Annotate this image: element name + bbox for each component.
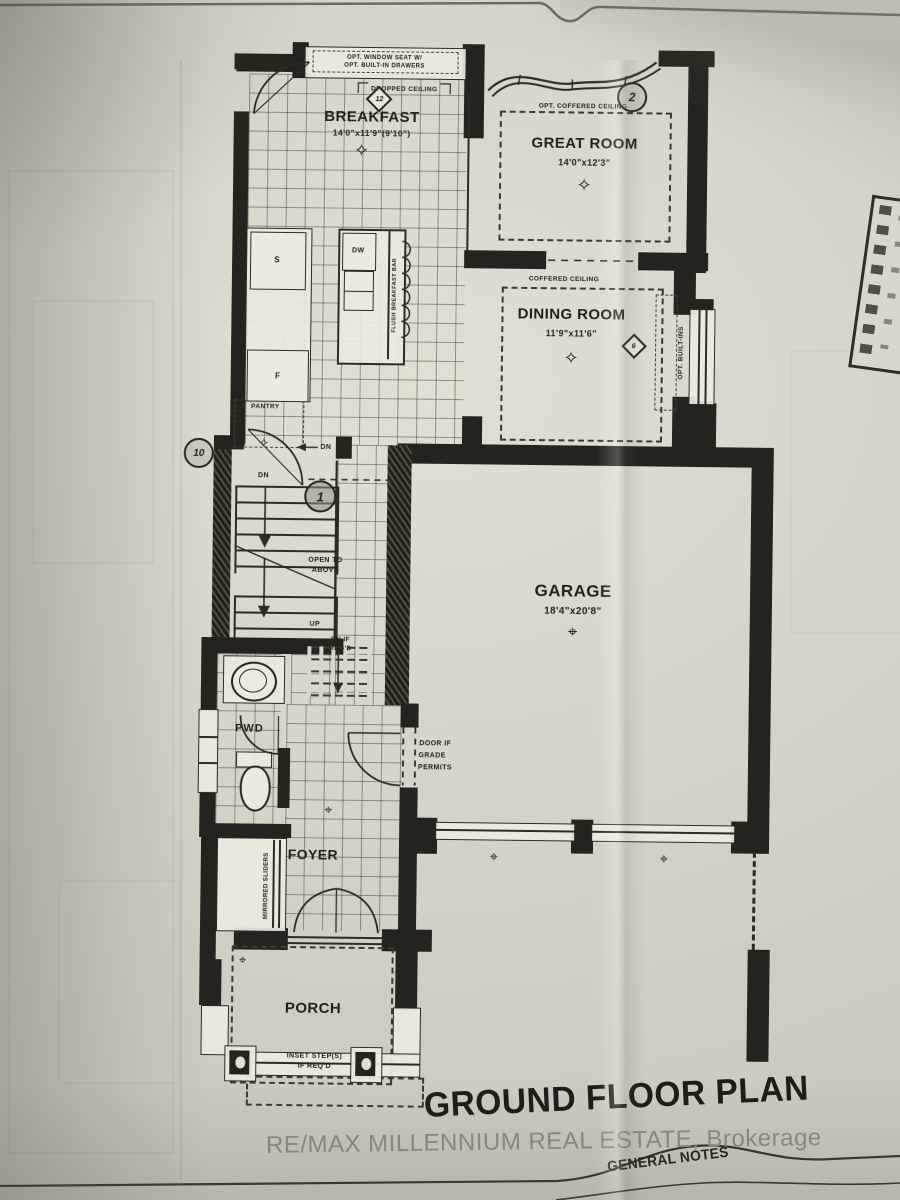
great-room-label: GREAT ROOM bbox=[531, 134, 637, 152]
foyer-tile-floor bbox=[284, 704, 403, 931]
dn-label: DN bbox=[258, 472, 269, 479]
marker-circle-1: 1 bbox=[304, 480, 336, 512]
open-to-above-line1: OPEN TO bbox=[308, 557, 342, 564]
pwd-window bbox=[198, 709, 219, 793]
stair-left-wall bbox=[211, 437, 231, 641]
wall bbox=[336, 437, 352, 459]
step-outline bbox=[246, 1076, 424, 1108]
wall bbox=[201, 653, 218, 711]
garage-top-wall bbox=[398, 443, 774, 468]
wall bbox=[199, 791, 215, 827]
opt-builtins-note: OPT. BUILT-INS bbox=[677, 326, 685, 379]
door-sill-line bbox=[288, 936, 382, 939]
ceiling-light-symbol: ✧ bbox=[563, 348, 578, 369]
optional-stair-treads bbox=[307, 646, 372, 697]
wall bbox=[199, 823, 291, 838]
garage-door-header bbox=[591, 824, 735, 844]
center-point-symbol: ⌖ bbox=[660, 850, 669, 868]
breakfast-dims: 14'0"x11'9"(9'10") bbox=[333, 128, 411, 139]
garage-left-wall bbox=[385, 445, 412, 705]
garage-dims: 18'4"x20'8" bbox=[544, 606, 602, 618]
great-room-dims: 14'0"x12'3" bbox=[558, 157, 610, 168]
ceiling-light-symbol: ✧ bbox=[354, 140, 369, 161]
garage-door-left-jamb bbox=[409, 818, 437, 854]
breakfast-label: BREAKFAST bbox=[324, 108, 419, 126]
door-grade-line3: PERMITS bbox=[418, 764, 452, 771]
wall bbox=[462, 416, 482, 446]
dn-top-label: DN bbox=[320, 444, 331, 451]
flush-breakfast-bar-label: FLUSH BREAKFAST BAR bbox=[391, 258, 398, 333]
divider-opening-dash bbox=[548, 260, 636, 261]
dining-builtin-window bbox=[688, 309, 715, 405]
bay-tick bbox=[518, 75, 520, 85]
roof-line-post bbox=[746, 950, 769, 1062]
dining-room-label: DINING ROOM bbox=[518, 305, 626, 323]
dn-if-reqd-line1: DN IF bbox=[331, 636, 350, 643]
wall bbox=[200, 837, 217, 959]
wall bbox=[686, 51, 709, 273]
center-point-symbol: ⌖ bbox=[239, 953, 247, 968]
wall bbox=[277, 748, 290, 808]
inset-steps-line2: IF REQ'D bbox=[298, 1063, 331, 1070]
pwd-sink bbox=[231, 661, 277, 702]
roof-dashed-line bbox=[752, 852, 756, 950]
garage-entry-jamb-dash bbox=[415, 728, 416, 786]
porch-right-wall bbox=[395, 933, 418, 1009]
island-sink-bowl bbox=[344, 291, 374, 311]
stair-treads-lower bbox=[234, 595, 339, 638]
window-seat-note-line2: OPT. BUILT-IN DRAWERS bbox=[344, 63, 425, 70]
dishwasher-label: DW bbox=[352, 247, 365, 254]
porch-label: PORCH bbox=[285, 1000, 341, 1018]
door-sill-line bbox=[288, 942, 382, 945]
mirrored-sliders-label: MIRRORED SLIDERS bbox=[263, 852, 270, 919]
foyer-closet bbox=[216, 837, 287, 932]
pwd-label: PWD bbox=[235, 722, 264, 734]
marker-circle-2: 2 bbox=[617, 82, 647, 112]
garage-door-header bbox=[435, 822, 575, 842]
island-sink-bowl bbox=[344, 271, 374, 293]
up-label: UP bbox=[309, 621, 320, 628]
garage-right-wall bbox=[747, 448, 774, 850]
center-point-symbol: ⌖ bbox=[324, 802, 332, 818]
window-seat-note-line1: OPT. WINDOW SEAT W/ bbox=[347, 55, 422, 62]
open-to-above-line2: ABOVE bbox=[312, 567, 339, 574]
sink-label: S bbox=[274, 255, 280, 264]
wall bbox=[234, 53, 252, 69]
center-point-symbol: ⌖ bbox=[568, 622, 578, 642]
inset-steps-line1: INSET STEP(S) bbox=[287, 1053, 342, 1061]
porch-column bbox=[224, 1045, 256, 1081]
dining-room-dims: 11'9"x11'6" bbox=[546, 328, 597, 339]
opt-builtins-outline bbox=[654, 294, 677, 410]
pantry-label: PANTRY bbox=[251, 403, 279, 410]
porch-left-wall bbox=[199, 959, 222, 1005]
door-grade-line2: GRADE bbox=[418, 752, 445, 759]
coffered-ceiling-note: COFFERED CEILING bbox=[529, 275, 599, 283]
fridge-label: F bbox=[275, 371, 280, 380]
garage-label: GARAGE bbox=[534, 581, 611, 602]
wall bbox=[400, 703, 418, 727]
wall bbox=[398, 787, 418, 933]
ceiling-light-symbol: ✧ bbox=[258, 436, 269, 451]
marker-circle-10: 10 bbox=[184, 438, 214, 468]
ceiling-light-symbol: ✧ bbox=[576, 175, 591, 196]
garage-entry-jamb-dash bbox=[403, 727, 404, 785]
ground-floor-plan: OPT. WINDOW SEAT W/ OPT. BUILT-IN DRAWER… bbox=[0, 0, 900, 1200]
foyer-label: FOYER bbox=[288, 846, 338, 863]
window-seat-inner bbox=[312, 50, 458, 74]
center-point-symbol: ⌖ bbox=[490, 848, 499, 866]
opt-coffered-ceiling-note: OPT. COFFERED CEILING bbox=[539, 103, 628, 111]
wall bbox=[464, 250, 546, 269]
door-grade-line1: DOOR IF bbox=[419, 740, 451, 747]
garage-door-right-jamb bbox=[731, 821, 769, 853]
porch-column bbox=[350, 1047, 382, 1083]
dn-if-reqd-line2: REQ'D bbox=[329, 645, 351, 652]
porch-halfwall-right bbox=[392, 1007, 421, 1055]
floor-plan-photo: OPT. WINDOW SEAT W/ OPT. BUILT-IN DRAWER… bbox=[0, 0, 900, 1200]
